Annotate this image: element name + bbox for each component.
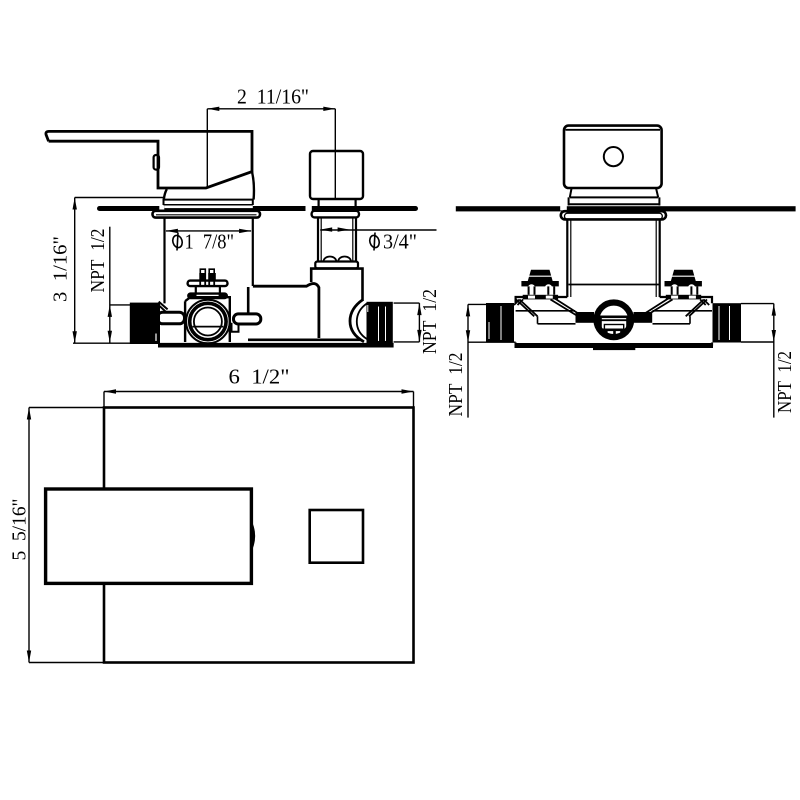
svg-text:1 7/8": 1 7/8" bbox=[185, 230, 235, 254]
svg-text:NPT 1/2: NPT 1/2 bbox=[419, 289, 441, 354]
svg-text:3 1/16": 3 1/16" bbox=[50, 236, 72, 302]
svg-text:5 5/16": 5 5/16" bbox=[9, 499, 31, 561]
svg-text:NPT 1/2: NPT 1/2 bbox=[87, 229, 109, 293]
svg-text:3/4": 3/4" bbox=[383, 230, 417, 254]
svg-text:NPT 1/2: NPT 1/2 bbox=[445, 353, 467, 417]
svg-text:2 11/16": 2 11/16" bbox=[237, 85, 309, 109]
svg-text:6 1/2": 6 1/2" bbox=[229, 365, 290, 389]
svg-text:NPT 1/2: NPT 1/2 bbox=[774, 351, 796, 413]
